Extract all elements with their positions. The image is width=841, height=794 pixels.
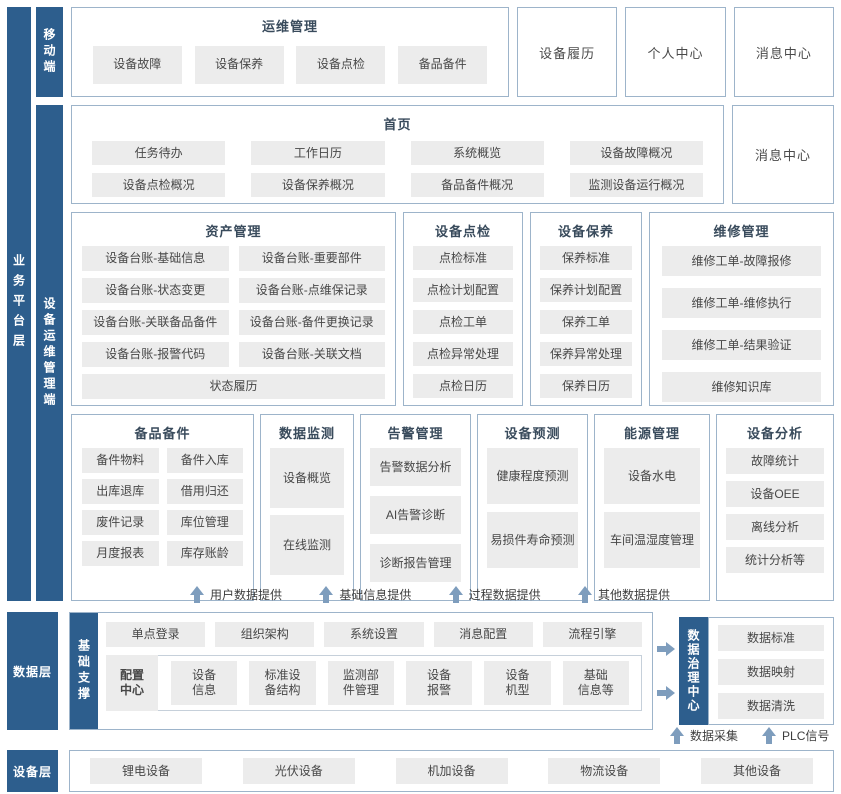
prediction-box: 设备预测 健康程度预测易损件寿命预测 bbox=[477, 414, 588, 601]
module-item: 数据清洗 bbox=[718, 693, 824, 719]
governance-arrows bbox=[653, 612, 679, 730]
config-center-items: 设备 信息标准设 备结构监测部 件管理设备 报警设备 机型基础 信息等 bbox=[140, 655, 642, 711]
spare-parts-items: 备件物料备件入库出库退库借用归还废件记录库位管理月度报表库存账龄 bbox=[72, 448, 253, 566]
spare-parts-box: 备品备件 备件物料备件入库出库退库借用归还废件记录库位管理月度报表库存账龄 bbox=[71, 414, 254, 601]
analysis-box: 设备分析 故障统计设备OEE离线分析统计分析等 bbox=[716, 414, 834, 601]
prediction-items: 健康程度预测易损件寿命预测 bbox=[478, 448, 587, 568]
repair-box: 维修管理 维修工单-故障报修维修工单-维修执行维修工单-结果验证维修知识库 bbox=[649, 212, 834, 406]
module-item: 设备保养概况 bbox=[251, 173, 384, 197]
home-items: 任务待办工作日历系统概览设备故障概况设备点检概况设备保养概况备品备件概况监测设备… bbox=[72, 139, 723, 197]
module-item: 监测部 件管理 bbox=[328, 661, 394, 705]
message-center-box: 消息中心 bbox=[732, 105, 834, 204]
module-item: 出库退库 bbox=[82, 479, 159, 504]
mobile-standalone-boxes: 设备履历个人中心消息中心 bbox=[517, 7, 834, 97]
collection-flow-text: PLC信号 bbox=[782, 727, 829, 744]
module-item: 基础 信息等 bbox=[563, 661, 629, 705]
module-item: 诊断报告管理 bbox=[370, 544, 461, 582]
module-item: 备品备件概况 bbox=[411, 173, 544, 197]
right-arrow-icon bbox=[657, 686, 675, 700]
energy-items: 设备水电车间温湿度管理 bbox=[595, 448, 709, 568]
module-item: 设备概览 bbox=[270, 448, 344, 508]
collection-flow-label: 数据采集 bbox=[670, 727, 738, 744]
asset-footer-item: 状态履历 bbox=[82, 374, 385, 399]
data-flow-text: 基础信息提供 bbox=[339, 586, 411, 603]
module-item: 库位管理 bbox=[167, 510, 244, 535]
business-platform-section: 业务平台层 移动端 运维管理 设备故障设备保养设备点检备品备件 设备履历个人中心… bbox=[7, 7, 834, 601]
module-item: AI告警诊断 bbox=[370, 496, 461, 534]
up-arrow-icon bbox=[319, 586, 333, 603]
repair-items: 维修工单-故障报修维修工单-维修执行维修工单-结果验证维修知识库 bbox=[650, 246, 833, 402]
module-item: 设备 信息 bbox=[171, 661, 237, 705]
module-item: 告警数据分析 bbox=[370, 448, 461, 486]
business-main: 移动端 运维管理 设备故障设备保养设备点检备品备件 设备履历个人中心消息中心 设… bbox=[36, 7, 834, 601]
data-monitor-items: 设备概览在线监测 bbox=[261, 448, 353, 575]
module-item: 健康程度预测 bbox=[487, 448, 578, 504]
asset-management-title: 资产管理 bbox=[72, 213, 395, 246]
device-mgmt-bar: 设备运维管理端 bbox=[36, 105, 63, 601]
repair-title: 维修管理 bbox=[650, 213, 833, 246]
module-item: 设备点检 bbox=[296, 46, 385, 84]
module-item: 设备台账-状态变更 bbox=[82, 278, 229, 303]
module-item: 维修工单-结果验证 bbox=[662, 330, 821, 360]
data-flow-text: 用户数据提供 bbox=[210, 586, 282, 603]
module-item: 点检日历 bbox=[413, 374, 513, 398]
base-support-row1: 单点登录组织架构系统设置消息配置流程引擎 bbox=[106, 622, 642, 647]
module-item: 光伏设备 bbox=[243, 758, 355, 784]
module-item: 设备 报警 bbox=[406, 661, 472, 705]
module-item: 维修知识库 bbox=[662, 372, 821, 402]
data-flow-label: 基础信息提供 bbox=[319, 586, 411, 603]
maintenance-box: 设备保养 保养标准保养计划配置保养工单保养异常处理保养日历 bbox=[530, 212, 642, 406]
module-item: 点检标准 bbox=[413, 246, 513, 270]
data-flow-row: 用户数据提供 基础信息提供 过程数据提供 其他数据提供 bbox=[190, 586, 670, 603]
up-arrow-icon bbox=[190, 586, 204, 603]
maintenance-title: 设备保养 bbox=[531, 213, 641, 246]
module-item: 设备保养 bbox=[195, 46, 284, 84]
module-item: 物流设备 bbox=[548, 758, 660, 784]
data-monitor-box: 数据监测 设备概览在线监测 bbox=[260, 414, 354, 601]
asset-items: 设备台账-基础信息设备台账-重要部件设备台账-状态变更设备台账-点维保记录设备台… bbox=[72, 246, 395, 367]
asset-management-box: 资产管理 设备台账-基础信息设备台账-重要部件设备台账-状态变更设备台账-点维保… bbox=[71, 212, 396, 406]
module-item: 设备台账-基础信息 bbox=[82, 246, 229, 271]
base-support-bar: 基础支撑 bbox=[70, 613, 98, 729]
data-flow-label: 用户数据提供 bbox=[190, 586, 282, 603]
module-item: 保养计划配置 bbox=[540, 278, 632, 302]
base-support-content: 单点登录组织架构系统设置消息配置流程引擎 配置 中心 设备 信息标准设 备结构监… bbox=[98, 613, 652, 729]
module-item: 流程引擎 bbox=[543, 622, 642, 647]
module-item: 月度报表 bbox=[82, 541, 159, 566]
data-governance-bar: 数据治理中心 bbox=[679, 617, 708, 725]
home-row: 首页 任务待办工作日历系统概览设备故障概况设备点检概况设备保养概况备品备件概况监… bbox=[71, 105, 834, 204]
standalone-module-box: 个人中心 bbox=[625, 7, 725, 97]
module-item: 废件记录 bbox=[82, 510, 159, 535]
module-item: 故障统计 bbox=[726, 448, 824, 474]
data-layer-section: 数据层 基础支撑 单点登录组织架构系统设置消息配置流程引擎 配置 中心 设备 信… bbox=[7, 612, 834, 730]
module-item: 监测设备运行概况 bbox=[570, 173, 703, 197]
module-item: 保养标准 bbox=[540, 246, 632, 270]
right-arrow-icon bbox=[657, 642, 675, 656]
spare-parts-title: 备品备件 bbox=[72, 415, 253, 448]
collection-flow-row: 数据采集 PLC信号 bbox=[670, 727, 829, 744]
collection-flow-label: PLC信号 bbox=[762, 727, 829, 744]
analysis-row: 备品备件 备件物料备件入库出库退库借用归还废件记录库位管理月度报表库存账龄 数据… bbox=[71, 414, 834, 601]
prediction-title: 设备预测 bbox=[478, 415, 587, 448]
module-item: 借用归还 bbox=[167, 479, 244, 504]
module-item: 设备 机型 bbox=[484, 661, 550, 705]
up-arrow-icon bbox=[449, 586, 463, 603]
module-item: 库存账龄 bbox=[167, 541, 244, 566]
module-item: 其他设备 bbox=[701, 758, 813, 784]
module-item: 维修工单-故障报修 bbox=[662, 246, 821, 276]
device-mgmt-row: 设备运维管理端 首页 任务待办工作日历系统概览设备故障概况设备点检概况设备保养概… bbox=[36, 105, 834, 601]
module-item: 保养工单 bbox=[540, 310, 632, 334]
equipment-layer-section: 设备层 锂电设备光伏设备机加设备物流设备其他设备 bbox=[7, 750, 834, 792]
module-item: 备品备件 bbox=[398, 46, 487, 84]
module-item: 设备台账-关联文档 bbox=[239, 342, 386, 367]
inspection-box: 设备点检 点检标准点检计划配置点检工单点检异常处理点检日历 bbox=[403, 212, 523, 406]
up-arrow-icon bbox=[762, 727, 776, 744]
module-item: 易损件寿命预测 bbox=[487, 512, 578, 568]
module-item: 系统设置 bbox=[324, 622, 423, 647]
config-center-label: 配置 中心 bbox=[106, 655, 158, 711]
module-item: 统计分析等 bbox=[726, 547, 824, 573]
maintenance-items: 保养标准保养计划配置保养工单保养异常处理保养日历 bbox=[531, 246, 641, 398]
module-item: 单点登录 bbox=[106, 622, 205, 647]
module-item: 设备台账-点维保记录 bbox=[239, 278, 386, 303]
inspection-items: 点检标准点检计划配置点检工单点检异常处理点检日历 bbox=[404, 246, 522, 398]
standalone-module-box: 设备履历 bbox=[517, 7, 617, 97]
module-item: 设备台账-备件更换记录 bbox=[239, 310, 386, 335]
module-item: 维修工单-维修执行 bbox=[662, 288, 821, 318]
module-item: 消息配置 bbox=[434, 622, 533, 647]
module-item: 保养异常处理 bbox=[540, 342, 632, 366]
energy-title: 能源管理 bbox=[595, 415, 709, 448]
module-item: 设备台账-报警代码 bbox=[82, 342, 229, 367]
data-governance-items: 数据标准数据映射数据清洗 bbox=[708, 617, 834, 725]
home-title: 首页 bbox=[72, 106, 723, 139]
analysis-title: 设备分析 bbox=[717, 415, 833, 448]
module-item: 组织架构 bbox=[215, 622, 314, 647]
mobile-row: 移动端 运维管理 设备故障设备保养设备点检备品备件 设备履历个人中心消息中心 bbox=[36, 7, 834, 97]
alarm-items: 告警数据分析AI告警诊断诊断报告管理 bbox=[361, 448, 470, 582]
module-item: 点检工单 bbox=[413, 310, 513, 334]
module-item: 设备台账-关联备品备件 bbox=[82, 310, 229, 335]
data-flow-text: 过程数据提供 bbox=[469, 586, 541, 603]
module-item: 工作日历 bbox=[251, 141, 384, 165]
mobile-layer-bar: 移动端 bbox=[36, 7, 63, 97]
management-row: 资产管理 设备台账-基础信息设备台账-重要部件设备台账-状态变更设备台账-点维保… bbox=[71, 212, 834, 406]
module-item: 任务待办 bbox=[92, 141, 225, 165]
base-support-row2: 配置 中心 设备 信息标准设 备结构监测部 件管理设备 报警设备 机型基础 信息… bbox=[106, 655, 642, 711]
inspection-title: 设备点检 bbox=[404, 213, 522, 246]
module-item: 数据映射 bbox=[718, 659, 824, 685]
module-item: 设备水电 bbox=[604, 448, 700, 504]
module-item: 设备故障概况 bbox=[570, 141, 703, 165]
module-item: 设备故障 bbox=[93, 46, 182, 84]
data-monitor-title: 数据监测 bbox=[261, 415, 353, 448]
module-item: 设备点检概况 bbox=[92, 173, 225, 197]
up-arrow-icon bbox=[578, 586, 592, 603]
device-mgmt-content: 首页 任务待办工作日历系统概览设备故障概况设备点检概况设备保养概况备品备件概况监… bbox=[71, 105, 834, 601]
up-arrow-icon bbox=[670, 727, 684, 744]
home-box: 首页 任务待办工作日历系统概览设备故障概况设备点检概况设备保养概况备品备件概况监… bbox=[71, 105, 724, 204]
ops-management-title: 运维管理 bbox=[72, 8, 508, 41]
business-layer-bar: 业务平台层 bbox=[7, 7, 31, 601]
ops-management-items: 设备故障设备保养设备点检备品备件 bbox=[72, 41, 508, 96]
module-item: 备件物料 bbox=[82, 448, 159, 473]
standalone-module-box: 消息中心 bbox=[734, 7, 834, 97]
module-item: 在线监测 bbox=[270, 515, 344, 575]
module-item: 点检计划配置 bbox=[413, 278, 513, 302]
energy-box: 能源管理 设备水电车间温湿度管理 bbox=[594, 414, 710, 601]
module-item: 保养日历 bbox=[540, 374, 632, 398]
module-item: 标准设 备结构 bbox=[249, 661, 315, 705]
equipment-layer-bar: 设备层 bbox=[7, 750, 58, 792]
module-item: 设备OEE bbox=[726, 481, 824, 507]
alarm-title: 告警管理 bbox=[361, 415, 470, 448]
data-governance-group: 数据治理中心 数据标准数据映射数据清洗 bbox=[679, 617, 834, 725]
module-item: 车间温湿度管理 bbox=[604, 512, 700, 568]
analysis-items: 故障统计设备OEE离线分析统计分析等 bbox=[717, 448, 833, 573]
module-item: 锂电设备 bbox=[90, 758, 202, 784]
module-item: 离线分析 bbox=[726, 514, 824, 540]
collection-flow-text: 数据采集 bbox=[690, 727, 738, 744]
module-item: 机加设备 bbox=[396, 758, 508, 784]
data-flow-label: 过程数据提供 bbox=[449, 586, 541, 603]
asset-footer-wrap: 状态履历 bbox=[72, 374, 395, 399]
architecture-diagram: 业务平台层 移动端 运维管理 设备故障设备保养设备点检备品备件 设备履历个人中心… bbox=[0, 0, 841, 794]
equipment-items: 锂电设备光伏设备机加设备物流设备其他设备 bbox=[69, 750, 834, 792]
module-item: 数据标准 bbox=[718, 625, 824, 651]
base-support-box: 基础支撑 单点登录组织架构系统设置消息配置流程引擎 配置 中心 设备 信息标准设… bbox=[69, 612, 653, 730]
alarm-box: 告警管理 告警数据分析AI告警诊断诊断报告管理 bbox=[360, 414, 471, 601]
ops-management-box: 运维管理 设备故障设备保养设备点检备品备件 bbox=[71, 7, 509, 97]
data-flow-label: 其他数据提供 bbox=[578, 586, 670, 603]
data-flow-text: 其他数据提供 bbox=[598, 586, 670, 603]
module-item: 点检异常处理 bbox=[413, 342, 513, 366]
data-layer-bar: 数据层 bbox=[7, 612, 58, 730]
module-item: 设备台账-重要部件 bbox=[239, 246, 386, 271]
module-item: 备件入库 bbox=[167, 448, 244, 473]
module-item: 系统概览 bbox=[411, 141, 544, 165]
